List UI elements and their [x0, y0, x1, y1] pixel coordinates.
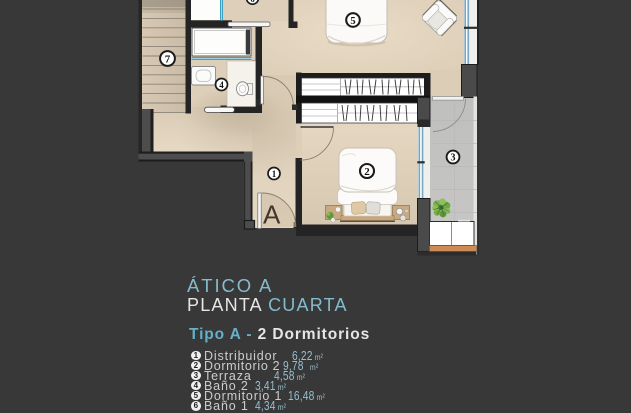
svg-text:1: 1 [272, 169, 277, 179]
svg-text:2: 2 [364, 166, 370, 178]
svg-text:3: 3 [451, 153, 456, 164]
svg-text:7: 7 [165, 53, 171, 65]
svg-text:A: A [263, 200, 281, 230]
svg-text:6: 6 [250, 0, 255, 4]
svg-text:4: 4 [219, 80, 224, 90]
svg-text:5: 5 [350, 16, 355, 27]
